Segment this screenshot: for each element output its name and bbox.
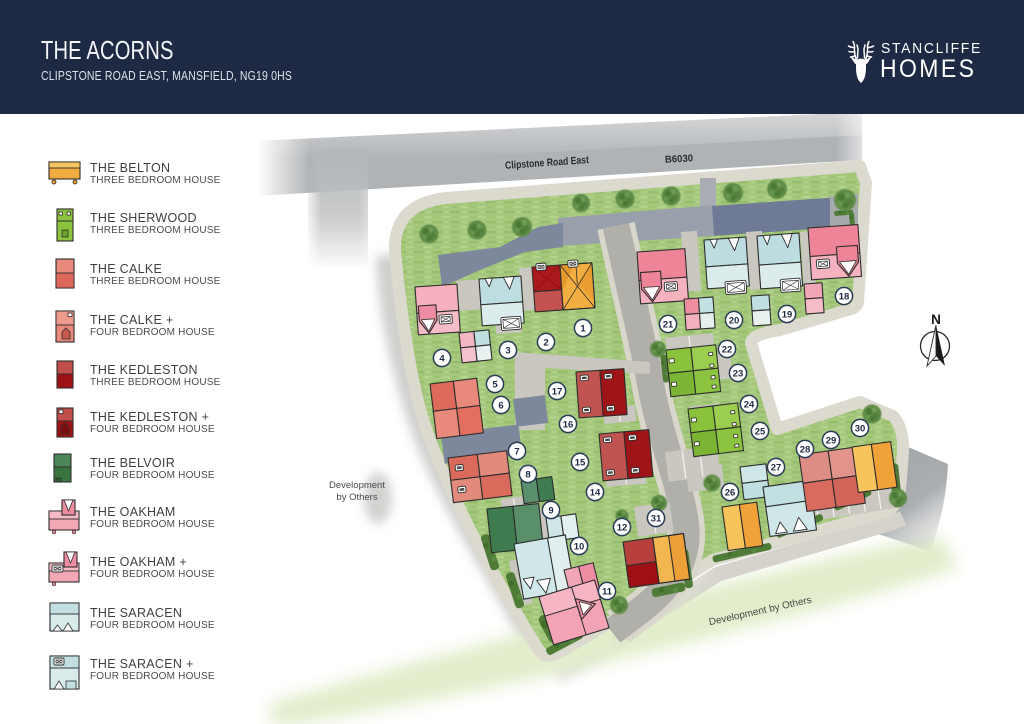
svg-text:2: 2 [543,337,548,348]
svg-text:23: 23 [733,368,744,379]
svg-text:26: 26 [725,487,736,498]
svg-text:27: 27 [771,462,782,473]
svg-text:16: 16 [563,419,574,430]
svg-text:29: 29 [826,435,837,446]
svg-text:4: 4 [439,353,445,364]
svg-text:5: 5 [492,379,498,390]
svg-text:19: 19 [782,309,793,320]
svg-text:6: 6 [498,400,503,411]
svg-text:21: 21 [663,319,674,330]
svg-text:15: 15 [575,457,586,468]
svg-text:7: 7 [514,446,519,457]
svg-text:31: 31 [651,513,662,524]
svg-text:9: 9 [548,505,553,516]
svg-text:22: 22 [722,344,733,355]
svg-text:11: 11 [602,586,613,597]
svg-text:18: 18 [839,291,850,302]
svg-text:1: 1 [580,323,586,334]
svg-text:17: 17 [552,386,563,397]
svg-text:14: 14 [590,487,601,498]
svg-text:28: 28 [800,444,811,455]
svg-text:3: 3 [505,345,510,356]
svg-text:B6030: B6030 [665,153,694,165]
svg-text:10: 10 [574,541,585,552]
svg-text:20: 20 [729,315,740,326]
svg-text:Development: Development [329,480,385,491]
svg-text:12: 12 [617,522,628,533]
svg-text:25: 25 [755,426,766,437]
svg-text:24: 24 [744,399,755,410]
svg-text:N: N [931,312,941,327]
svg-text:8: 8 [525,469,530,480]
svg-text:by Others: by Others [336,492,377,503]
svg-text:30: 30 [855,423,866,434]
